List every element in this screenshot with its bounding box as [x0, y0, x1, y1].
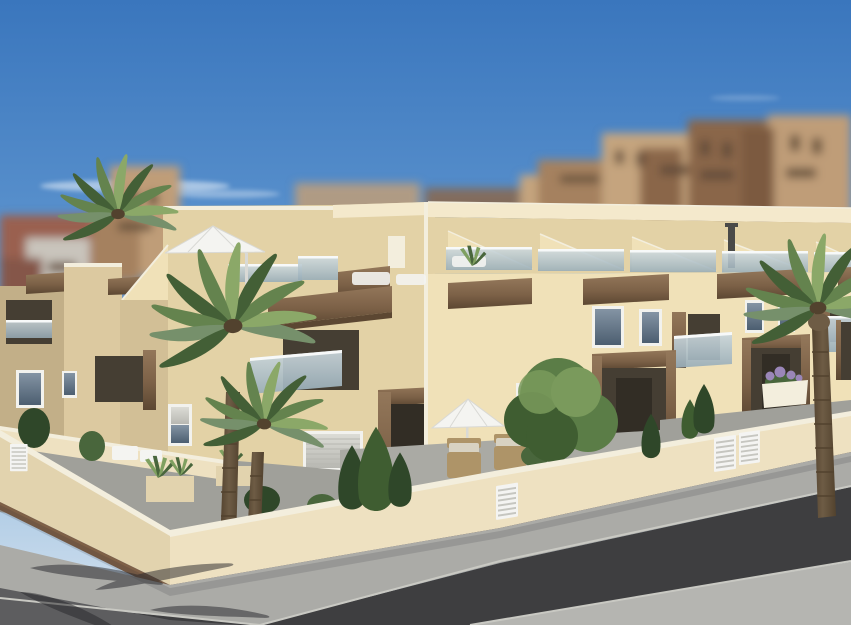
white-gate: [714, 435, 736, 472]
glass-balustrade: [6, 322, 52, 338]
render-canvas: [0, 0, 851, 625]
roof-access-door: [388, 236, 405, 268]
shrub: [18, 408, 50, 448]
white-gate: [739, 430, 760, 465]
scene-architectural-render: [0, 0, 851, 625]
white-gate: [10, 444, 28, 471]
porch-recess: [95, 356, 143, 402]
white-gate: [496, 483, 518, 520]
wood-post: [143, 350, 156, 410]
glass-balustrade: [298, 258, 338, 280]
planter-box: [146, 476, 194, 502]
shrub: [79, 431, 105, 461]
